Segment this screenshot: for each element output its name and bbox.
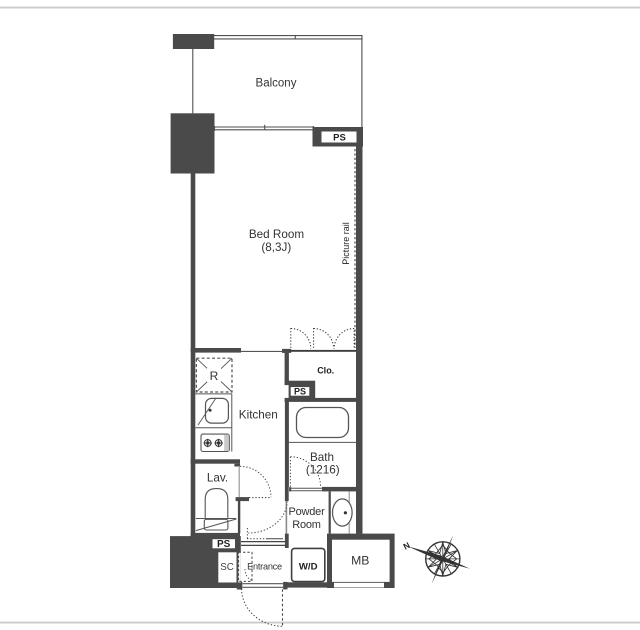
svg-text:MB: MB bbox=[351, 554, 369, 568]
svg-text:Bath: Bath bbox=[310, 451, 334, 464]
svg-text:SC: SC bbox=[220, 562, 234, 573]
svg-text:Powder: Powder bbox=[288, 506, 325, 518]
svg-text:PS: PS bbox=[217, 539, 231, 550]
svg-text:Room: Room bbox=[292, 519, 321, 531]
svg-text:Bed Room: Bed Room bbox=[249, 228, 304, 241]
svg-text:Balcony: Balcony bbox=[256, 78, 297, 90]
svg-text:(8,3J): (8,3J) bbox=[261, 241, 291, 254]
svg-text:PS: PS bbox=[294, 387, 306, 397]
svg-text:Lav.: Lav. bbox=[207, 472, 228, 485]
svg-text:W/D: W/D bbox=[299, 562, 318, 573]
svg-text:Entrance: Entrance bbox=[247, 562, 282, 572]
svg-text:Kitchen: Kitchen bbox=[239, 408, 278, 421]
svg-text:R: R bbox=[210, 369, 219, 383]
svg-text:Clo.: Clo. bbox=[317, 366, 334, 376]
svg-text:Picture rail: Picture rail bbox=[341, 222, 351, 265]
svg-text:PS: PS bbox=[333, 132, 346, 143]
svg-text:(1216): (1216) bbox=[306, 464, 340, 477]
